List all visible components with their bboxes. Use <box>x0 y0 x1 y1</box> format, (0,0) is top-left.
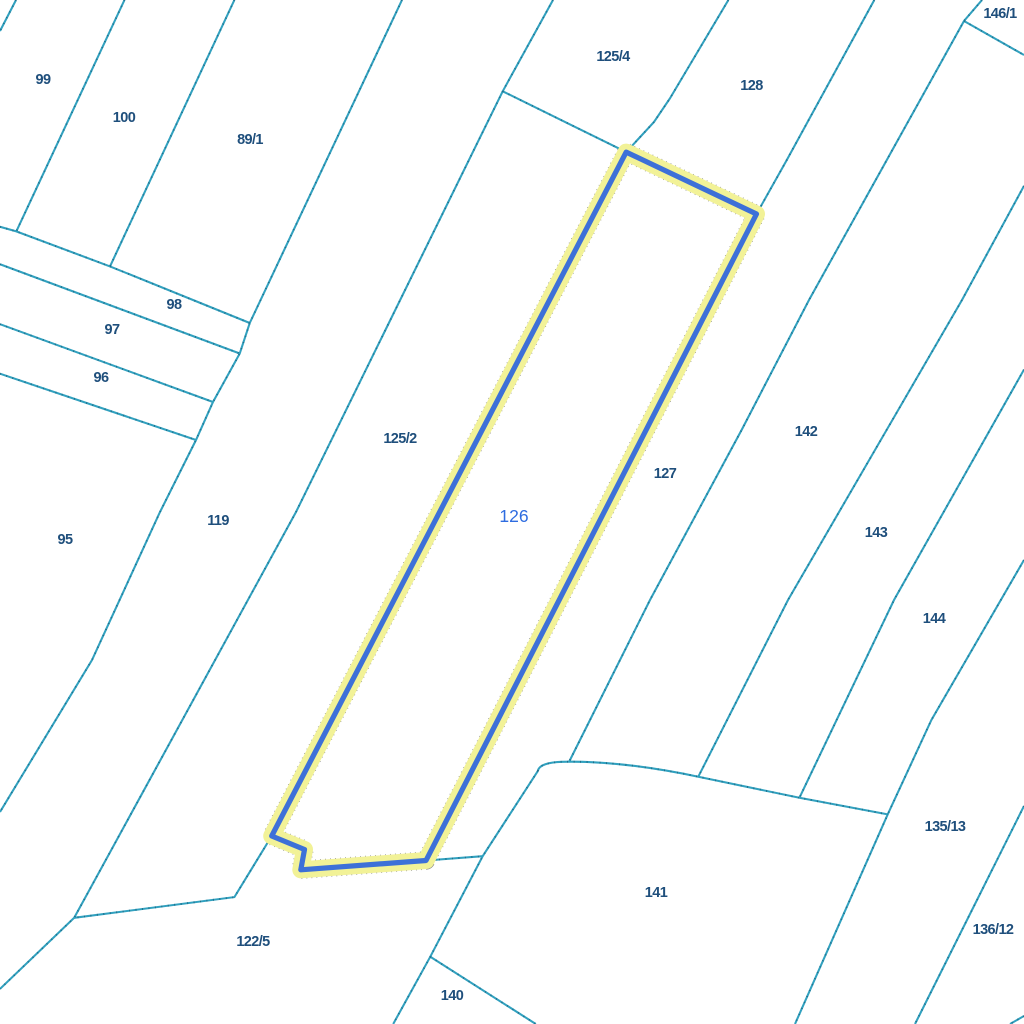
svg-text:143: 143 <box>865 525 888 541</box>
svg-text:119: 119 <box>207 513 229 529</box>
svg-text:140: 140 <box>441 988 464 1004</box>
svg-text:95: 95 <box>58 532 73 548</box>
svg-text:127: 127 <box>654 466 677 482</box>
svg-text:146/1: 146/1 <box>983 6 1017 22</box>
svg-text:125/2: 125/2 <box>383 431 417 447</box>
svg-text:136/12: 136/12 <box>973 922 1014 938</box>
svg-text:97: 97 <box>105 322 120 338</box>
svg-text:96: 96 <box>94 370 109 386</box>
svg-text:100: 100 <box>113 110 136 126</box>
svg-text:142: 142 <box>795 424 818 440</box>
svg-text:122/5: 122/5 <box>236 934 270 950</box>
svg-text:89/1: 89/1 <box>237 132 263 148</box>
svg-text:128: 128 <box>740 78 763 94</box>
svg-text:125/4: 125/4 <box>596 49 630 65</box>
svg-text:126: 126 <box>499 506 528 526</box>
svg-text:144: 144 <box>923 611 946 627</box>
svg-text:135/13: 135/13 <box>925 819 966 835</box>
svg-text:141: 141 <box>645 885 668 901</box>
svg-text:99: 99 <box>36 72 51 88</box>
svg-text:98: 98 <box>167 297 182 313</box>
